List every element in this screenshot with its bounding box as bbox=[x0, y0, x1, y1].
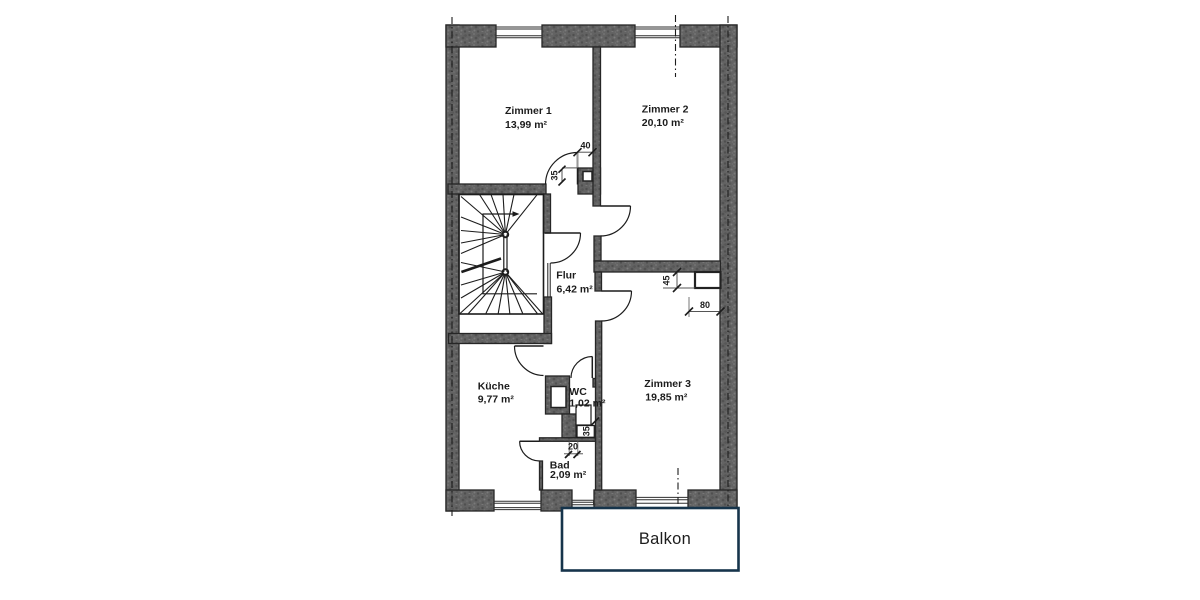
svg-text:6,42 m²: 6,42 m² bbox=[557, 284, 594, 296]
svg-text:13,99 m²: 13,99 m² bbox=[505, 119, 548, 131]
svg-text:1,02 m²: 1,02 m² bbox=[569, 398, 606, 410]
svg-text:2,09 m²: 2,09 m² bbox=[550, 469, 587, 481]
svg-text:20: 20 bbox=[568, 442, 578, 452]
svg-text:Küche: Küche bbox=[478, 381, 510, 393]
svg-text:35: 35 bbox=[549, 170, 559, 180]
svg-text:45: 45 bbox=[662, 275, 672, 285]
svg-text:19,85 m²: 19,85 m² bbox=[645, 392, 688, 404]
svg-text:80: 80 bbox=[700, 300, 710, 310]
svg-text:40: 40 bbox=[580, 141, 590, 151]
svg-text:9,77 m²: 9,77 m² bbox=[478, 394, 515, 406]
svg-text:Balkon: Balkon bbox=[639, 530, 691, 548]
svg-text:Zimmer 2: Zimmer 2 bbox=[642, 104, 689, 116]
svg-text:Zimmer 1: Zimmer 1 bbox=[505, 105, 552, 117]
svg-text:Zimmer 3: Zimmer 3 bbox=[644, 378, 691, 390]
svg-text:Flur: Flur bbox=[556, 270, 576, 282]
svg-text:WC: WC bbox=[569, 386, 587, 398]
svg-text:35: 35 bbox=[582, 426, 592, 436]
svg-text:20,10 m²: 20,10 m² bbox=[642, 117, 685, 129]
